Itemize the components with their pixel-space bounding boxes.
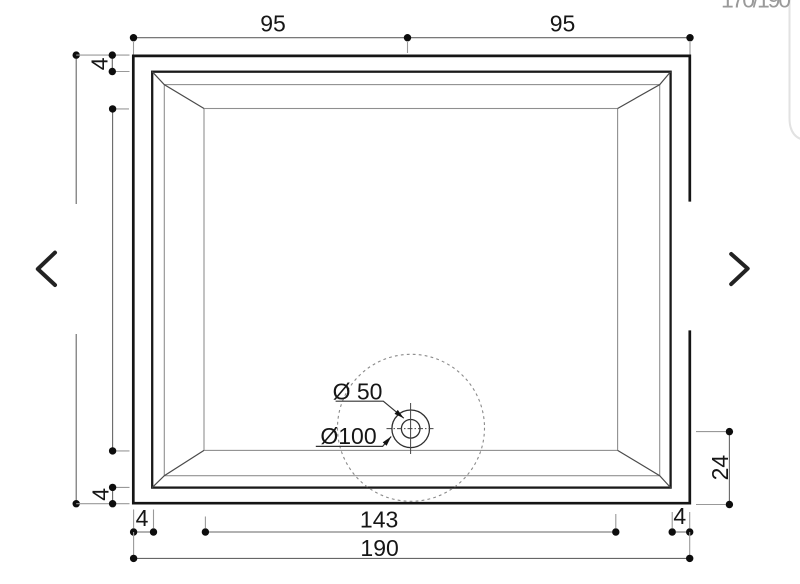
svg-text:4: 4: [88, 488, 114, 501]
svg-text:95: 95: [550, 11, 576, 37]
svg-text:24: 24: [707, 455, 733, 481]
svg-text:95: 95: [260, 11, 286, 37]
svg-text:4: 4: [136, 505, 149, 531]
svg-text:143: 143: [360, 507, 398, 533]
svg-text:4: 4: [86, 57, 112, 70]
svg-text:4: 4: [673, 503, 686, 529]
svg-text:Ø100: Ø100: [320, 423, 376, 449]
svg-text:170/190: 170/190: [721, 0, 791, 13]
svg-text:190: 190: [360, 535, 398, 561]
